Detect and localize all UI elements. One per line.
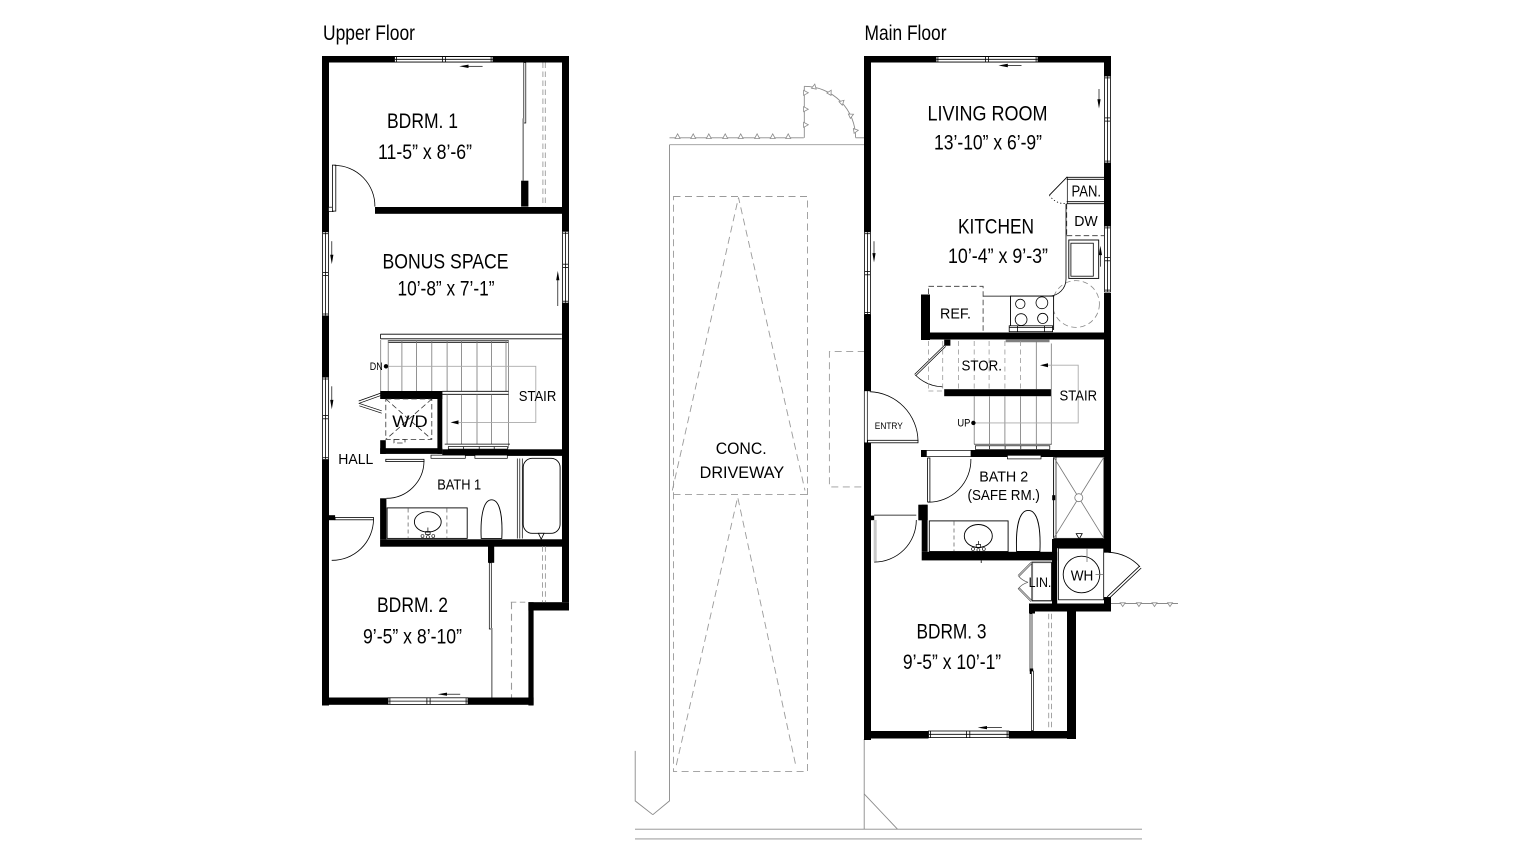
svg-text:11-5” x 8’-6”: 11-5” x 8’-6” xyxy=(378,141,472,164)
svg-text:STAIR: STAIR xyxy=(519,388,557,405)
svg-text:STOR.: STOR. xyxy=(961,358,1002,375)
svg-text:LIN.: LIN. xyxy=(1029,574,1052,590)
svg-text:REF.: REF. xyxy=(940,305,971,322)
svg-text:BONUS SPACE: BONUS SPACE xyxy=(383,250,509,274)
svg-text:CONC.: CONC. xyxy=(716,439,767,458)
svg-text:DW: DW xyxy=(1074,213,1098,230)
svg-text:W/D: W/D xyxy=(392,412,427,431)
svg-text:STAIR: STAIR xyxy=(1060,388,1098,405)
svg-text:BATH 2: BATH 2 xyxy=(979,469,1028,486)
svg-text:10’-8” x 7’-1”: 10’-8” x 7’-1” xyxy=(398,278,495,301)
svg-text:PAN.: PAN. xyxy=(1072,183,1102,200)
svg-text:BDRM. 1: BDRM. 1 xyxy=(387,109,458,133)
svg-text:KITCHEN: KITCHEN xyxy=(958,215,1034,239)
svg-text:DN: DN xyxy=(370,361,383,373)
svg-text:BATH 1: BATH 1 xyxy=(437,476,481,493)
svg-text:Upper Floor: Upper Floor xyxy=(323,22,415,45)
svg-text:BDRM. 3: BDRM. 3 xyxy=(917,620,987,644)
svg-text:ENTRY: ENTRY xyxy=(875,421,904,432)
svg-text:HALL: HALL xyxy=(338,451,373,468)
svg-text:LIVING ROOM: LIVING ROOM xyxy=(928,101,1048,125)
svg-text:DRIVEWAY: DRIVEWAY xyxy=(700,463,785,482)
svg-text:WH: WH xyxy=(1071,569,1094,585)
svg-text:13’-10” x 6’-9”: 13’-10” x 6’-9” xyxy=(934,132,1042,155)
svg-text:UP: UP xyxy=(957,417,970,429)
svg-text:9’-5” x 8’-10”: 9’-5” x 8’-10” xyxy=(363,626,462,649)
svg-text:(SAFE RM.): (SAFE RM.) xyxy=(968,487,1040,504)
svg-text:BDRM. 2: BDRM. 2 xyxy=(377,593,448,617)
svg-text:Main Floor: Main Floor xyxy=(865,22,947,45)
svg-text:9’-5” x 10’-1”: 9’-5” x 10’-1” xyxy=(903,651,1001,674)
svg-text:10’-4” x 9’-3”: 10’-4” x 9’-3” xyxy=(948,245,1048,268)
